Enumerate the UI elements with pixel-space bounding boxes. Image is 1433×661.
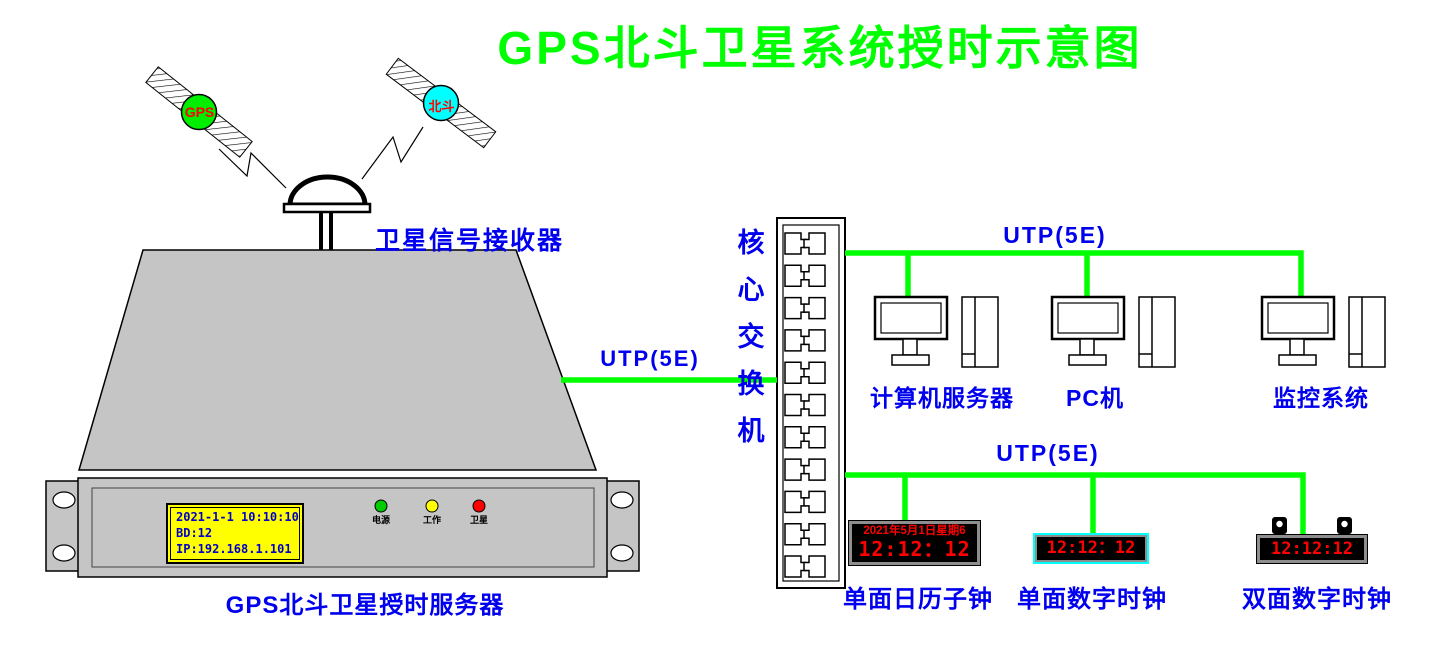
utp-server-link-label: UTP(5E) (595, 346, 705, 372)
server-rack-chassis (46, 478, 639, 577)
calendar-clock-caption: 单面日历子钟 (838, 579, 998, 614)
computer-server-caption: 计算机服务器 (862, 379, 1022, 413)
gps-signal-bolt-icon (219, 149, 286, 188)
satellite-led (473, 500, 485, 512)
cable-top-bus (845, 253, 1301, 296)
computer-server-icon (875, 297, 998, 367)
utp-bottom-bus-label: UTP(5E) (988, 440, 1108, 467)
server-label: GPS北斗卫星授时服务器 (215, 585, 515, 620)
satellite-led-label: 卫星 (459, 513, 499, 526)
digital-clock-single-screen: 12:12：12 (1037, 537, 1145, 560)
server-lcd-display: 2021-1-1 10:10:10 BD:12 IP:192.168.1.101 (166, 503, 304, 564)
clock-bracket-icon (1337, 517, 1352, 534)
diagram-canvas: GPS北斗卫星系统授时示意图 GPS 北斗 卫星信号接收器 GPS北斗卫星授时服… (0, 0, 1433, 661)
power-led (375, 500, 387, 512)
mount-hole (611, 492, 633, 508)
monitor-system-icon (1262, 297, 1385, 367)
core-switch (777, 218, 845, 588)
lcd-line-ip: IP:192.168.1.101 (176, 541, 299, 557)
monitor-system-caption: 监控系统 (1241, 379, 1401, 413)
gps-satellite-label: GPS (182, 104, 217, 120)
run-led-label: 工作 (412, 513, 452, 526)
lcd-line-bd: BD:12 (176, 525, 299, 541)
page-title: GPS北斗卫星系统授时示意图 (490, 12, 1150, 78)
clock-bracket-icon (1272, 517, 1287, 534)
digital-clock-single-caption: 单面数字时钟 (1012, 579, 1172, 614)
lcd-line-datetime: 2021-1-1 10:10:10 (176, 509, 299, 525)
lcd-face: 2021-1-1 10:10:10 BD:12 IP:192.168.1.101 (170, 507, 300, 560)
pc-icon (1052, 297, 1175, 367)
server-pyramid-body (79, 250, 596, 470)
calendar-clock-time: 12:12：12 (852, 538, 977, 560)
rack-front-panel (78, 478, 607, 577)
mount-hole (611, 545, 633, 561)
calendar-clock: 2021年5月1日星期6 12:12：12 (848, 520, 981, 566)
receiver-label: 卫星信号接收器 (375, 221, 564, 257)
beidou-satellite-label: 北斗 (424, 96, 459, 115)
calendar-clock-screen: 2021年5月1日星期6 12:12：12 (852, 524, 977, 562)
core-switch-label: 核心交换机 (736, 220, 766, 455)
pc-caption: PC机 (1015, 379, 1175, 413)
digital-clock-double: 12:12:12 (1256, 534, 1368, 564)
antenna-dome-icon (284, 177, 370, 252)
digital-clock-double-caption: 双面数字时钟 (1237, 579, 1397, 614)
run-led (426, 500, 438, 512)
mount-hole (53, 492, 75, 508)
utp-top-bus-label: UTP(5E) (995, 222, 1115, 249)
digital-clock-double-screen: 12:12:12 (1260, 538, 1364, 560)
power-led-label: 电源 (361, 513, 401, 526)
beidou-signal-bolt-icon (362, 127, 423, 179)
mount-hole (53, 545, 75, 561)
digital-clock-single: 12:12：12 (1033, 533, 1149, 564)
